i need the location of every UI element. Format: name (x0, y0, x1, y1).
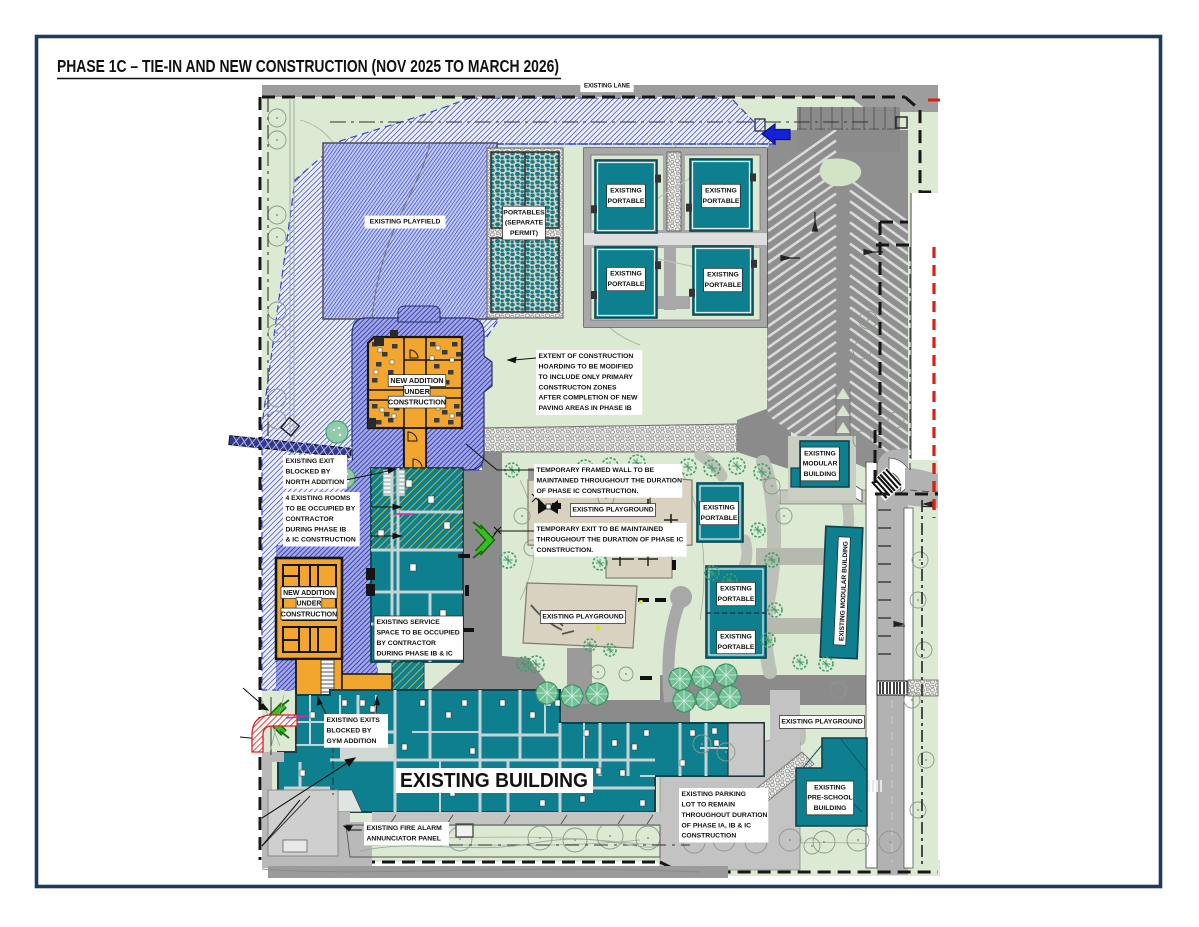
svg-text:EXISTING PLAYFIELD: EXISTING PLAYFIELD (370, 219, 441, 226)
svg-text:EXISTINGMODULARBUILDING: EXISTINGMODULARBUILDING (803, 450, 838, 478)
svg-text:EXISTING BUILDING: EXISTING BUILDING (400, 770, 588, 792)
svg-text:EXISTINGPRE-SCHOOLBUILDING: EXISTINGPRE-SCHOOLBUILDING (807, 784, 852, 812)
svg-text:PHASE 1C – TIE-IN AND NEW CONS: PHASE 1C – TIE-IN AND NEW CONSTRUCTION (… (57, 56, 559, 76)
svg-text:EXISTING LANE: EXISTING LANE (584, 83, 630, 89)
svg-text:EXISTING PLAYGROUND: EXISTING PLAYGROUND (572, 507, 653, 514)
svg-text:EXISTING PLAYGROUND: EXISTING PLAYGROUND (781, 719, 862, 726)
svg-text:EXISTING PLAYGROUND: EXISTING PLAYGROUND (542, 614, 623, 621)
